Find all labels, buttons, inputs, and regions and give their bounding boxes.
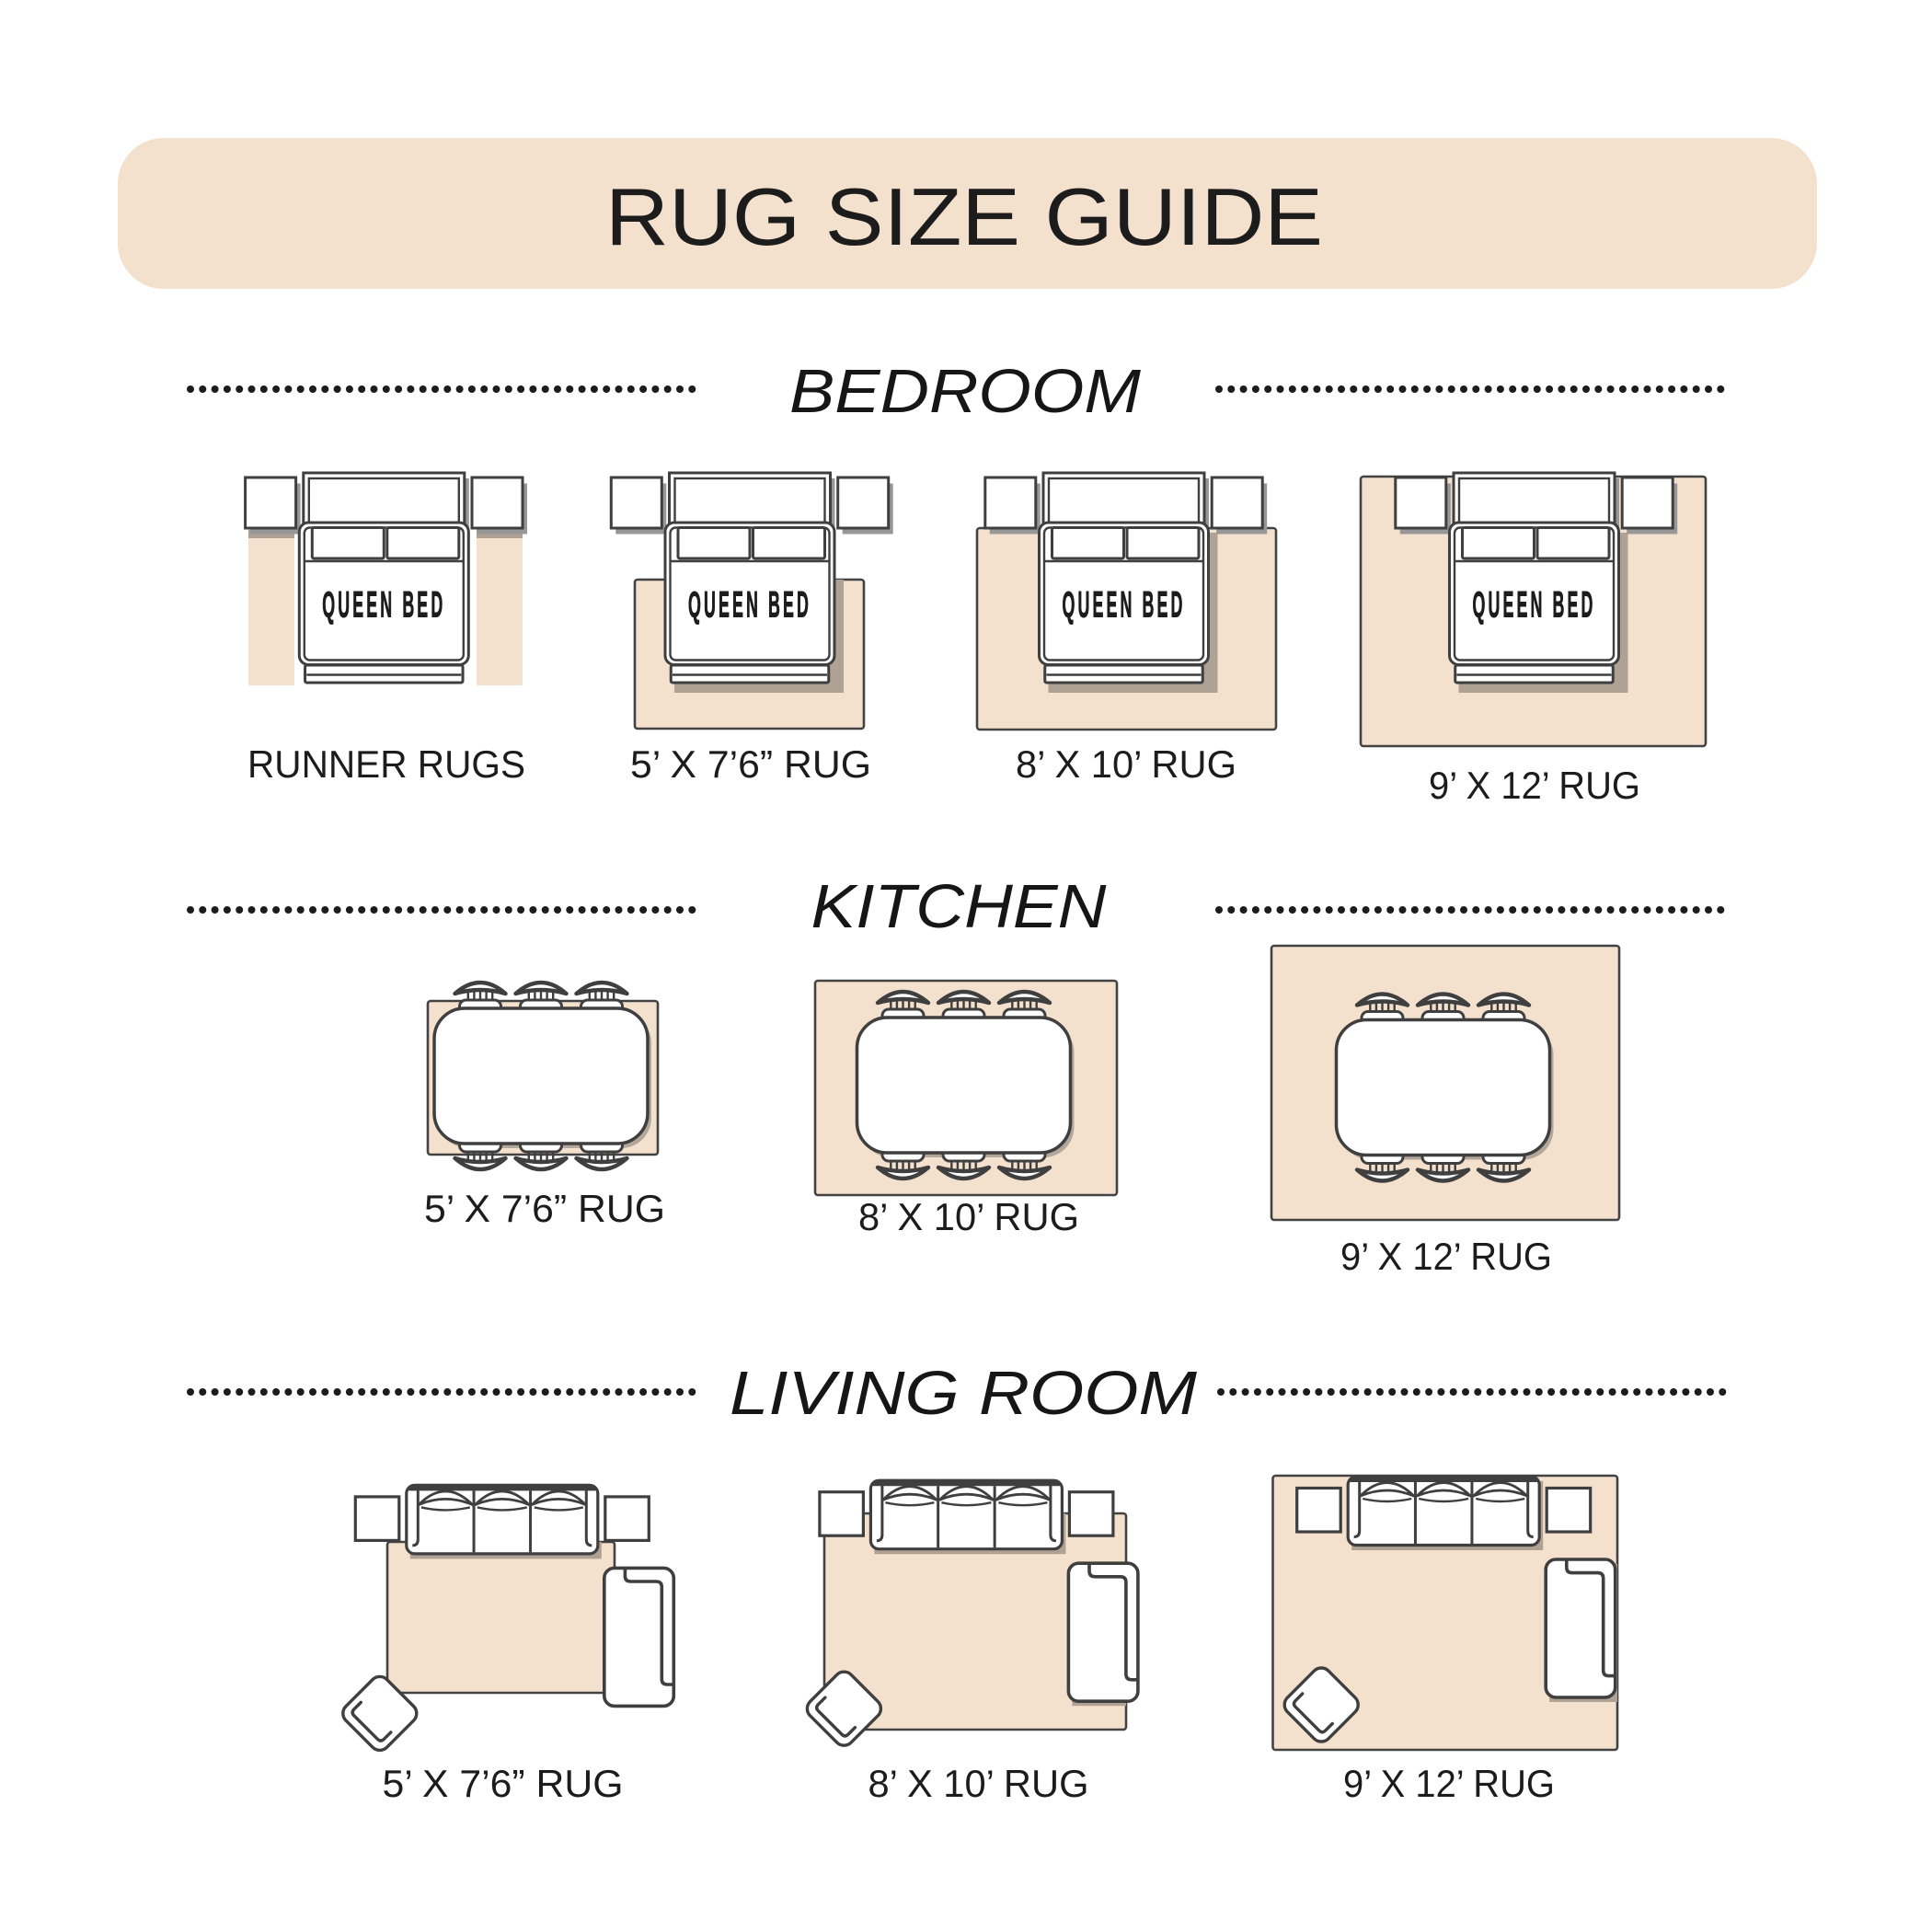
svg-text:5’ X 7’6” RUG: 5’ X 7’6” RUG bbox=[630, 742, 871, 786]
svg-text:LIVING ROOM: LIVING ROOM bbox=[730, 1359, 1197, 1428]
svg-text:8’ X 10’ RUG: 8’ X 10’ RUG bbox=[1016, 742, 1236, 786]
svg-text:9’ X 12’ RUG: 9’ X 12’ RUG bbox=[1343, 1762, 1555, 1805]
svg-text:9’ X 12’ RUG: 9’ X 12’ RUG bbox=[1429, 764, 1640, 807]
svg-text:RUG SIZE GUIDE: RUG SIZE GUIDE bbox=[605, 171, 1323, 262]
svg-text:KITCHEN: KITCHEN bbox=[811, 872, 1108, 941]
svg-text:RUNNER RUGS: RUNNER RUGS bbox=[247, 742, 525, 786]
svg-text:5’ X 7’6” RUG: 5’ X 7’6” RUG bbox=[383, 1762, 624, 1805]
svg-text:5’ X 7’6” RUG: 5’ X 7’6” RUG bbox=[424, 1187, 665, 1230]
svg-text:8’ X 10’ RUG: 8’ X 10’ RUG bbox=[868, 1762, 1089, 1805]
svg-text:8’ X 10’ RUG: 8’ X 10’ RUG bbox=[858, 1195, 1079, 1238]
svg-text:9’ X 12’ RUG: 9’ X 12’ RUG bbox=[1340, 1235, 1552, 1278]
svg-text:BEDROOM: BEDROOM bbox=[789, 357, 1141, 426]
